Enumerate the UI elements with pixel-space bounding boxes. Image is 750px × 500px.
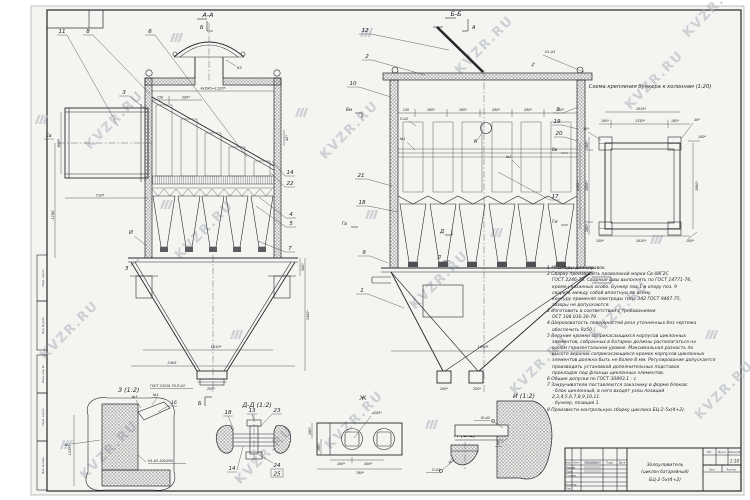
dim-180: 180*	[601, 119, 609, 123]
dim-40: 40*	[694, 118, 700, 122]
dim-40: 40*	[583, 127, 589, 131]
weld-mark-n2: №2	[505, 155, 512, 159]
note-line: элементов, собранных в батарею должны ра…	[552, 339, 696, 345]
dim-180: 180*	[671, 119, 679, 123]
stamp-label: Инв. № дубл.	[41, 316, 45, 333]
drawing-sheet: KVZR.RU KVZR.RU KVZR.RU KVZR.RU KVZR.RU …	[0, 0, 750, 500]
stamp-label: Подп. и дата	[41, 269, 45, 286]
weld-mark-n4: №4	[152, 393, 159, 397]
view-mark-b-bottom: Б	[198, 401, 202, 407]
note-line: 7 Закручиватели поставляются заказчику в…	[547, 382, 689, 388]
tb-row: Пров.	[566, 469, 573, 473]
callout-14: 14	[286, 170, 294, 176]
callout-12: 12	[361, 28, 369, 34]
stamp-label: Подп. и дата	[41, 408, 45, 425]
tb-header: Дата	[619, 461, 626, 465]
callout-18: 18	[358, 200, 366, 206]
tb-lit: Лит.	[707, 450, 713, 454]
dim-600: 600*	[57, 138, 61, 147]
callout-23: 23	[273, 408, 281, 414]
callout-4: 4	[289, 212, 293, 218]
note-line: сварить между собой вплотную по всему	[552, 290, 651, 296]
note-line: прокладок под фланцы циклонных элементов…	[552, 370, 664, 376]
dim-1400: 1400*	[306, 310, 310, 320]
dim-180: 180*	[585, 224, 589, 232]
weld-mark-pd3: П-Δ3	[432, 468, 440, 472]
dim-200: 200*	[440, 387, 448, 391]
dim-42: 42*	[285, 135, 289, 141]
callout-5: 5	[289, 221, 293, 227]
tb-list: Лист	[709, 468, 716, 472]
weld-mark-n1: №1	[399, 137, 406, 141]
tb-header: Лист	[573, 461, 580, 465]
dim-280: 280*	[459, 108, 467, 112]
dim-400: 400*	[364, 462, 372, 466]
tb-scale-value: 1:10	[730, 459, 740, 464]
dim-2080: 2080*	[576, 181, 580, 191]
stamp-label: Взам. инв. №	[41, 365, 45, 382]
note-line: одном горизонтальном уровне. Максимальна…	[552, 345, 693, 351]
dim-760: 760*	[356, 471, 364, 475]
note-line: 6 Общие допуски по ГОСТ 30893.1 - с	[547, 376, 637, 382]
tb-header: Подп.	[606, 461, 614, 465]
tb-massa: Масса	[718, 450, 726, 454]
dim-100: 100*	[686, 239, 694, 243]
tb-header: Изм.	[566, 461, 572, 465]
scheme-title: Схема крепления бункера к колоннам (1:20…	[589, 84, 712, 90]
flow-mark-ev: Ев	[46, 133, 52, 139]
callout-6: 6	[148, 29, 152, 35]
note-line: высоте верхних соприкасающихся кромок ко…	[552, 352, 705, 357]
dim-150: 150	[403, 108, 409, 112]
dim-100: 100*	[596, 239, 604, 243]
tb-row: Н.контр.	[566, 482, 577, 486]
callout-7: 7	[288, 246, 292, 252]
tb-row: Утв.	[566, 486, 571, 490]
dim-180: 180*	[337, 462, 345, 466]
dim-150: 150	[157, 96, 163, 100]
gost-weld-label: ГОСТ 23518-79-П-Δ3	[150, 384, 185, 388]
callout-11: 11	[58, 29, 65, 35]
level-mark-gv: Гв	[342, 221, 347, 226]
cut-mark-a: А	[471, 25, 476, 31]
callout-2: 2	[365, 54, 369, 60]
cut-mark-l: Л	[436, 255, 441, 261]
callout-9: 9	[362, 250, 366, 256]
dim-row-pitch: 4х280=1120*	[200, 87, 225, 91]
note-line: контуру применяя электроды типа Э42 ГОСТ…	[552, 296, 681, 302]
dim-280: 280*	[427, 108, 435, 112]
callout-3: 3	[122, 90, 126, 96]
dim-160: 160*	[308, 427, 312, 435]
weld-mark-n2: №2	[63, 443, 70, 447]
callout-19: 19	[553, 119, 561, 125]
callout-13: 13	[248, 408, 256, 414]
callout-20: 20	[555, 131, 563, 137]
dim-1190: 1190	[51, 210, 55, 220]
note-line: элементов должна быть не более 8 мм. Рег…	[552, 357, 716, 363]
callout-17: 17	[551, 194, 559, 200]
note-line: 1 *Размеры для справок.	[547, 265, 606, 271]
note-line: ОСТ 108.030.30-79.	[552, 314, 597, 320]
dim-280: 280*	[182, 96, 190, 100]
detail-dd-title: Д-Д (1:2)	[241, 401, 272, 409]
note-line: 8 Произвести контрольную сборку циклона …	[547, 407, 685, 413]
dim-180: 180*	[585, 141, 589, 149]
callout-1: 1	[360, 288, 364, 294]
detail-z-title: З (1:2)	[118, 386, 139, 394]
note-line: кроме указанных особо. Бункер поз.1 и оп…	[552, 284, 677, 290]
dim-300: 300*	[301, 263, 305, 271]
note-line: 5 Верхние кромки соприкасающихся корпусо…	[547, 333, 686, 339]
dim-123: 123*	[68, 446, 72, 455]
dim-1810: 1810*	[636, 239, 646, 243]
callout-18: 18	[224, 410, 232, 416]
dim-1810: 1810*	[636, 107, 646, 111]
weld-step-label: Н1-Δ3-100/200	[148, 459, 173, 463]
level-mark-vm: Вм	[346, 107, 352, 112]
level-mark-vv: Вв	[552, 147, 558, 152]
tb-product-name: Золоуловитель	[647, 462, 684, 468]
dim-1330: 1330*	[635, 119, 645, 123]
section-label-bb: Б-Б	[450, 10, 462, 18]
note-line: 3 Изготовить в соответствии с требования…	[547, 308, 656, 314]
dim-100: 100*	[698, 135, 706, 139]
weld-mark-n1d4: Н1-Δ4	[545, 50, 555, 54]
dim-1890: 1890*	[478, 345, 489, 349]
weld-mark-n3: №3	[131, 395, 138, 399]
callout-3: 3	[556, 107, 560, 113]
dim-1880: 1880*	[695, 181, 699, 191]
callout-25: 25	[273, 472, 281, 478]
dim-280: 280*	[524, 108, 532, 112]
callout-21: 21	[357, 173, 364, 179]
dim-dia282: ⌀282*	[372, 411, 382, 415]
note-line: 4 Шероховатость поверхностей реза уточне…	[547, 320, 697, 326]
cut-mark-b: Б	[200, 25, 204, 31]
dim-200: 200*	[207, 387, 215, 391]
note-line: зазоры не допускаются.	[552, 303, 610, 308]
tb-listov: Листов	[726, 468, 736, 472]
detail-i-title: И (1:2)	[513, 392, 535, 400]
callout-14: 14	[228, 466, 236, 472]
note-line: - блок циклонный, в него входят узлы поз…	[552, 388, 664, 394]
note-line: обеспечить Rz50.	[552, 327, 593, 333]
weld-mark-pd3: П-Δ3	[400, 117, 408, 121]
stamp-label: Инв. № подл.	[41, 456, 45, 473]
detail-zh-title: Ж	[359, 394, 368, 402]
callout-5-detail: 5	[497, 441, 500, 446]
dim-1650: 1650*	[585, 181, 589, 191]
dim-1610: 1610*	[211, 345, 222, 349]
callout-10: 10	[349, 81, 357, 87]
tb-row: Разраб.	[566, 465, 576, 469]
tb-product-name: (циклон батарейный)	[641, 469, 689, 474]
note-line: ГОСТ 2246-70. Сварные швы выполнять по Г…	[552, 277, 692, 283]
weld-mark-ud5: Ю-Δ5	[481, 416, 490, 420]
callout-24: 24	[273, 463, 281, 469]
callout-8: 8	[86, 29, 90, 35]
level-mark-gm: Гм	[552, 219, 558, 224]
dim-200: 200*	[473, 387, 481, 391]
tb-product-code: БЦ-2-5х(4+2)	[649, 477, 681, 483]
callout-22: 22	[286, 181, 294, 187]
note-line: производить установкой дополнительных по…	[552, 364, 680, 370]
tb-scale-label: Масштаб	[729, 450, 741, 454]
dim-180: 180*	[317, 443, 321, 451]
detail-mark-i: И	[129, 230, 133, 236]
note-line: - бункер, позиция 1.	[552, 400, 600, 406]
note-line: 2 Сварку производить проволокой марки Св…	[547, 271, 670, 277]
note-line: 2,3,4,5,6,7,8,9,10,11.	[552, 394, 601, 400]
dim-280: 280*	[492, 108, 500, 112]
detail-mark-k: К	[474, 139, 478, 145]
weld-mark-k2: К2	[237, 66, 243, 70]
dim-710: 710*	[96, 194, 105, 198]
callout-16: 16	[171, 400, 177, 406]
dim-2405: 2405	[167, 361, 177, 365]
section-label-aa: А-А	[201, 11, 213, 19]
cut-mark-d: Д	[439, 229, 444, 235]
tb-row: Т.контр.	[566, 473, 577, 477]
